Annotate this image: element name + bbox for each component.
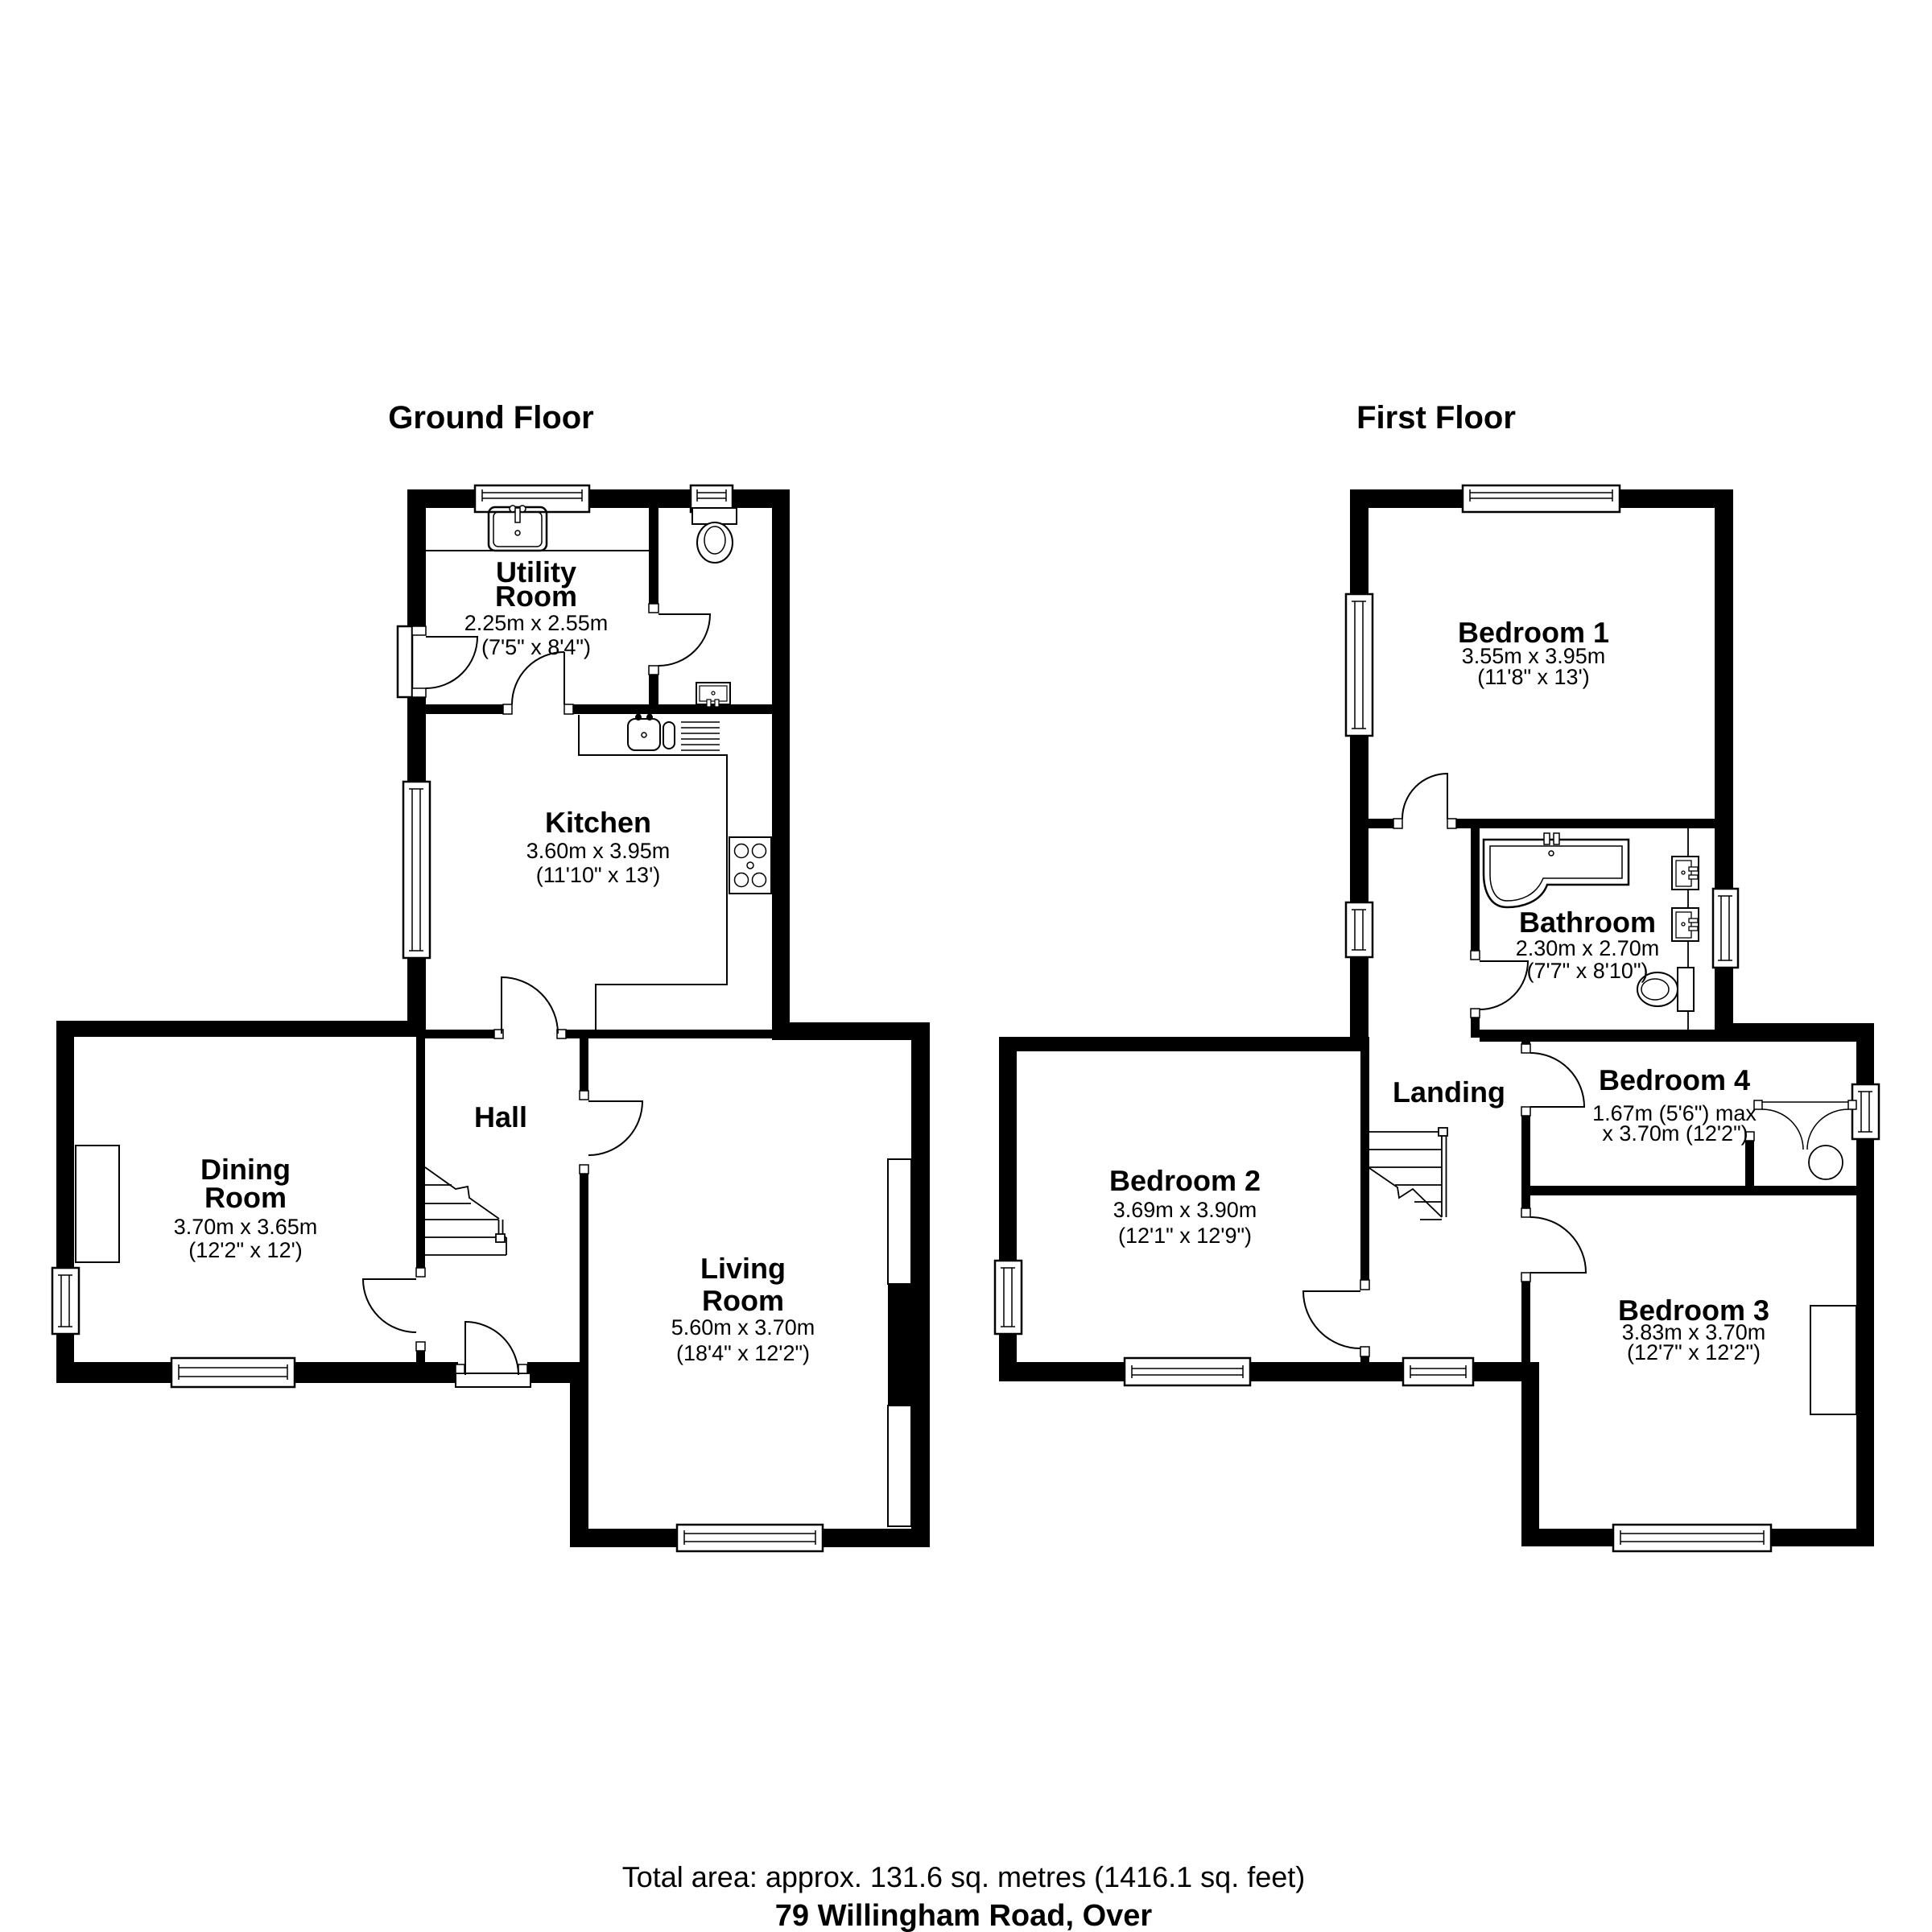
svg-text:Bathroom: Bathroom <box>1519 906 1656 939</box>
svg-text:(12'2" x 12'): (12'2" x 12') <box>188 1238 302 1262</box>
svg-text:Ground Floor: Ground Floor <box>388 400 594 436</box>
svg-text:5.60m x 3.70m: 5.60m x 3.70m <box>671 1315 815 1340</box>
svg-text:(7'5" x 8'4"): (7'5" x 8'4") <box>481 635 591 659</box>
svg-text:(18'4" x 12'2"): (18'4" x 12'2") <box>676 1341 810 1365</box>
svg-text:3.60m x 3.95m: 3.60m x 3.95m <box>526 839 671 863</box>
svg-text:Bedroom 4: Bedroom 4 <box>1599 1063 1750 1096</box>
svg-text:Hall: Hall <box>474 1100 527 1133</box>
svg-text:First Floor: First Floor <box>1356 400 1516 436</box>
svg-text:Bedroom 2: Bedroom 2 <box>1109 1164 1261 1197</box>
svg-text:(12'7" x 12'2"): (12'7" x 12'2") <box>1627 1340 1761 1364</box>
svg-text:Room: Room <box>204 1181 287 1214</box>
svg-text:Total area: approx. 131.6 sq.: Total area: approx. 131.6 sq. metres (14… <box>622 1860 1305 1893</box>
svg-text:Room: Room <box>495 580 577 613</box>
svg-text:Landing: Landing <box>1393 1075 1505 1108</box>
svg-text:2.30m x 2.70m: 2.30m x 2.70m <box>1516 936 1660 960</box>
svg-text:Room: Room <box>702 1284 784 1317</box>
svg-text:3.70m x 3.65m: 3.70m x 3.65m <box>174 1215 318 1239</box>
svg-text:(11'8" x 13'): (11'8" x 13') <box>1477 665 1589 689</box>
svg-text:2.25m x 2.55m: 2.25m x 2.55m <box>464 611 609 635</box>
svg-text:3.69m x 3.90m: 3.69m x 3.90m <box>1113 1198 1257 1222</box>
svg-text:Kitchen: Kitchen <box>545 806 651 839</box>
svg-text:(7'7" x 8'10"): (7'7" x 8'10") <box>1526 959 1648 983</box>
svg-text:(12'1" x 12'9"): (12'1" x 12'9") <box>1118 1224 1252 1248</box>
svg-text:Living: Living <box>700 1252 786 1285</box>
svg-text:79 Willingham Road, Over: 79 Willingham Road, Over <box>775 1899 1153 1932</box>
svg-text:(11'10" x 13'): (11'10" x 13') <box>536 863 660 887</box>
svg-text:x 3.70m (12'2"): x 3.70m (12'2") <box>1602 1121 1748 1146</box>
